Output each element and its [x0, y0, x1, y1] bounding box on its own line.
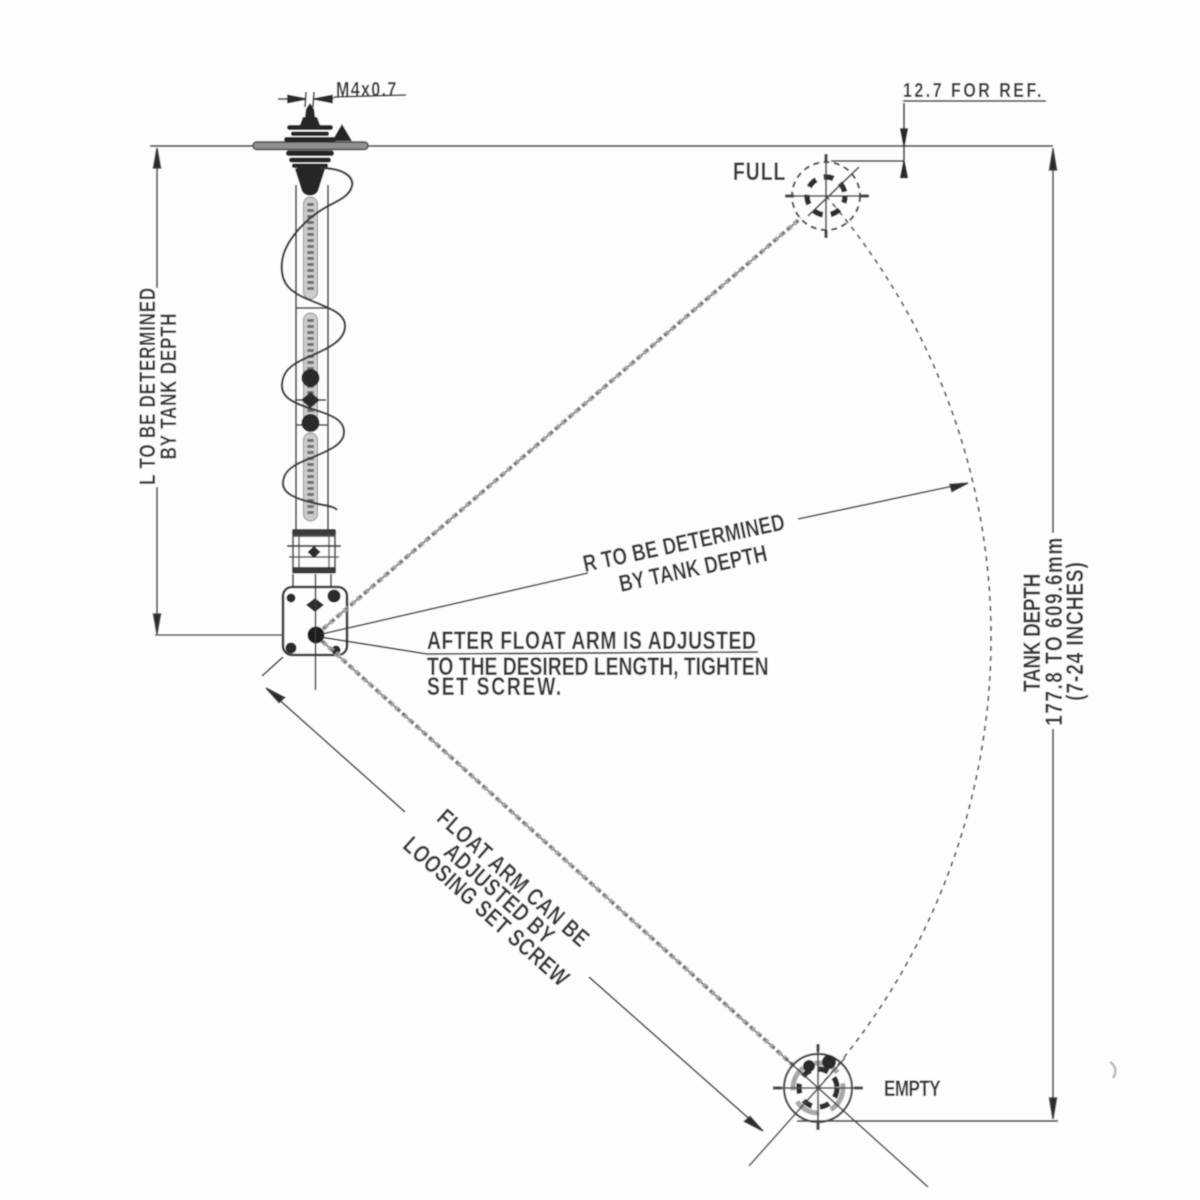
- svg-text:BY TANK DEPTH: BY TANK DEPTH: [157, 313, 182, 460]
- svg-text:M4x0.7: M4x0.7: [336, 77, 398, 100]
- svg-text:AFTER FLOAT ARM IS ADJUSTED: AFTER FLOAT ARM IS ADJUSTED: [427, 627, 756, 655]
- svg-text:EMPTY: EMPTY: [884, 1077, 941, 1102]
- svg-text:12.7 FOR REF.: 12.7 FOR REF.: [903, 78, 1044, 101]
- svg-text:FULL: FULL: [733, 158, 786, 186]
- svg-text:(7-24 INCHES): (7-24 INCHES): [1061, 561, 1089, 700]
- svg-text:SET SCREW.: SET SCREW.: [427, 673, 563, 701]
